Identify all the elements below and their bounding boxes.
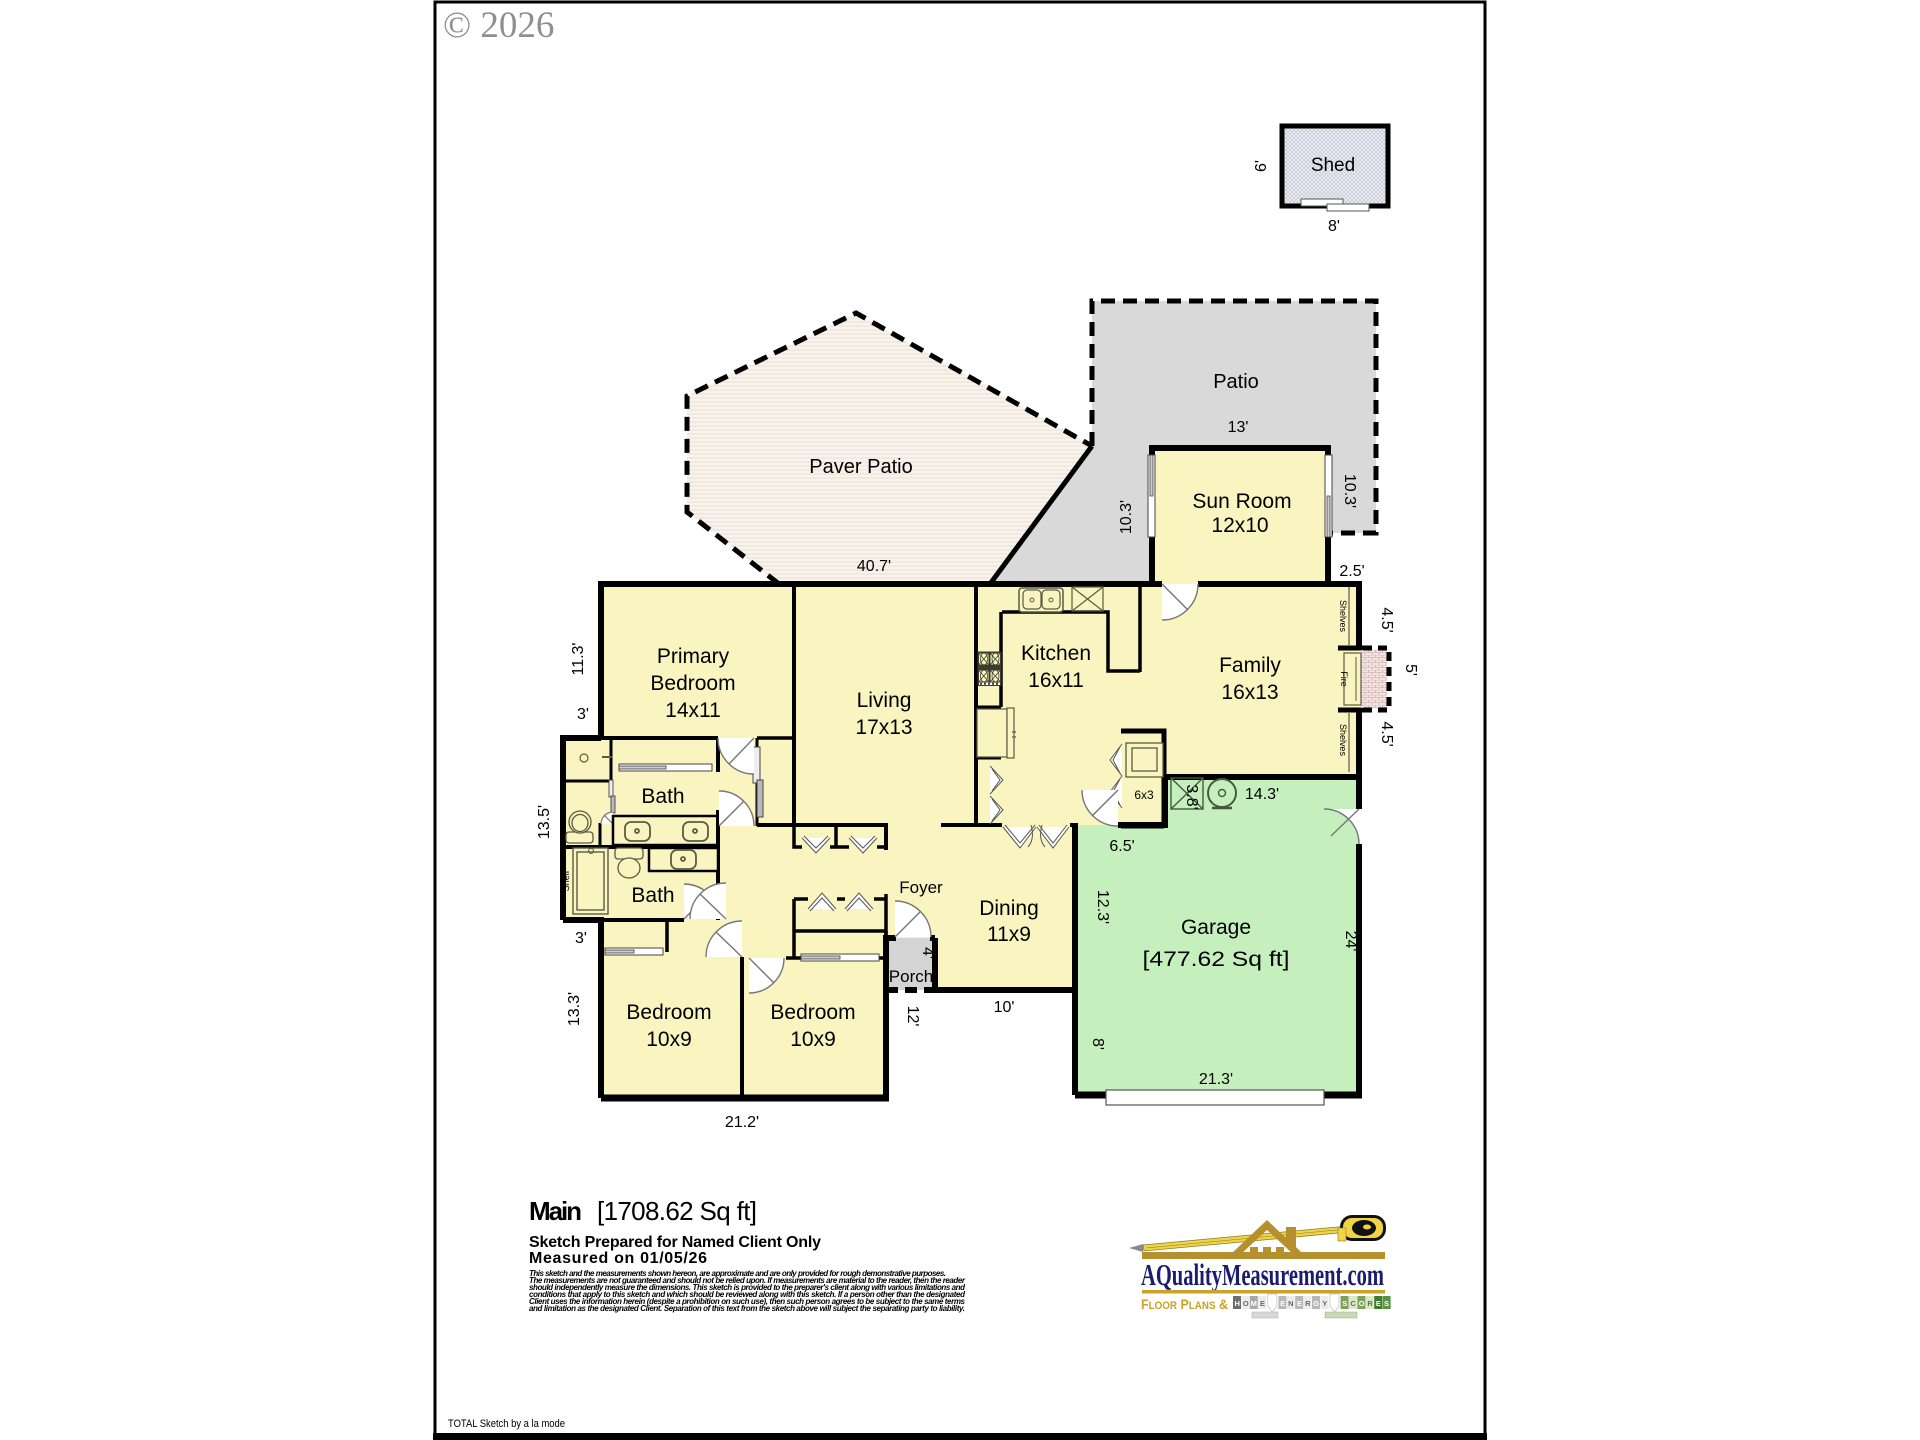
svg-text:10x9: 10x9 xyxy=(646,1028,692,1051)
svg-text:G: G xyxy=(1313,1299,1319,1308)
svg-text:Measured on 01/05/26: Measured on 01/05/26 xyxy=(529,1250,707,1267)
svg-text:Primary: Primary xyxy=(657,645,730,668)
svg-text:and limitation as the designat: and limitation as the designated Client.… xyxy=(529,1304,965,1313)
svg-text:3': 3' xyxy=(575,930,587,947)
svg-text:S: S xyxy=(1342,1299,1347,1308)
svg-text:12': 12' xyxy=(904,1006,921,1027)
svg-text:14x11: 14x11 xyxy=(665,699,721,722)
svg-text:S: S xyxy=(1384,1299,1389,1308)
svg-text:AQualityMeasurement.com: AQualityMeasurement.com xyxy=(1141,1257,1384,1292)
svg-text:12x10: 12x10 xyxy=(1211,514,1268,537)
svg-text:10.3': 10.3' xyxy=(1118,500,1135,534)
svg-text:4': 4' xyxy=(919,947,936,959)
svg-text:Sketch Prepared for Named Clie: Sketch Prepared for Named Client Only xyxy=(529,1234,821,1251)
svg-text:R: R xyxy=(1305,1299,1311,1308)
svg-text:E: E xyxy=(1280,1299,1285,1308)
svg-text:E: E xyxy=(1260,1299,1265,1308)
svg-text:6x3: 6x3 xyxy=(1134,788,1154,802)
svg-text:Sun Room: Sun Room xyxy=(1192,490,1291,513)
svg-text:Y: Y xyxy=(1322,1299,1327,1308)
svg-text:Shelves: Shelves xyxy=(1338,724,1348,757)
svg-text:8': 8' xyxy=(1328,218,1340,235)
svg-text:Shelves: Shelves xyxy=(1338,600,1348,633)
svg-text:© 2026: © 2026 xyxy=(443,5,554,46)
svg-text:21.2': 21.2' xyxy=(725,1114,759,1131)
svg-text:E: E xyxy=(1297,1299,1302,1308)
svg-text:Patio: Patio xyxy=(1213,371,1259,393)
svg-text:14.3': 14.3' xyxy=(1245,786,1279,803)
svg-text:17x13: 17x13 xyxy=(855,716,912,739)
svg-text:Bath: Bath xyxy=(641,785,684,808)
svg-text:TOTAL Sketch by a la mode: TOTAL Sketch by a la mode xyxy=(448,1418,565,1430)
svg-text:3': 3' xyxy=(577,706,589,723)
svg-text:12.3': 12.3' xyxy=(1094,890,1111,924)
svg-text:Garage: Garage xyxy=(1181,916,1251,939)
svg-text:Fire: Fire xyxy=(1339,671,1349,687)
svg-text:6.5': 6.5' xyxy=(1109,838,1134,855)
svg-text:E: E xyxy=(1376,1299,1381,1308)
svg-text:16x13: 16x13 xyxy=(1221,681,1278,704)
svg-text:Paver Patio: Paver Patio xyxy=(809,456,912,478)
svg-text:Living: Living xyxy=(857,689,912,712)
svg-text:10x9: 10x9 xyxy=(790,1028,836,1051)
svg-text:N: N xyxy=(1288,1299,1293,1308)
svg-text:Bath: Bath xyxy=(631,884,674,907)
svg-text:2.5': 2.5' xyxy=(1339,563,1364,580)
svg-text:[477.62 Sq ft]: [477.62 Sq ft] xyxy=(1143,948,1290,971)
svg-text:Family: Family xyxy=(1219,654,1281,677)
svg-text:10': 10' xyxy=(994,999,1015,1016)
svg-text:M: M xyxy=(1251,1299,1257,1308)
svg-text:Shed: Shed xyxy=(1311,155,1355,176)
svg-text:R: R xyxy=(1367,1299,1373,1308)
svg-text:40.7': 40.7' xyxy=(857,558,891,575)
svg-text:Kitchen: Kitchen xyxy=(1021,642,1091,665)
svg-text:24': 24' xyxy=(1342,931,1359,952)
svg-text:11x9: 11x9 xyxy=(987,923,1031,946)
svg-text:13': 13' xyxy=(1228,419,1249,436)
svg-text:16x11: 16x11 xyxy=(1028,669,1084,692)
svg-text:13.3': 13.3' xyxy=(566,992,583,1026)
svg-text:Porch: Porch xyxy=(889,967,933,986)
svg-text:H: H xyxy=(1235,1299,1240,1308)
svg-text:13.5': 13.5' xyxy=(536,805,553,839)
svg-text:4.5': 4.5' xyxy=(1378,607,1395,632)
svg-text:Bedroom: Bedroom xyxy=(626,1001,711,1024)
svg-text:10.3': 10.3' xyxy=(1341,474,1358,508)
svg-text:11.3': 11.3' xyxy=(570,642,587,675)
svg-text:C: C xyxy=(1350,1299,1356,1308)
svg-text:O: O xyxy=(1243,1299,1249,1308)
svg-text:Shelf: Shelf xyxy=(561,870,571,891)
svg-text:21.3': 21.3' xyxy=(1199,1071,1233,1088)
svg-text:Foyer: Foyer xyxy=(899,878,943,897)
svg-text:Bedroom: Bedroom xyxy=(650,672,735,695)
svg-text:4.5': 4.5' xyxy=(1378,721,1395,746)
svg-text:5': 5' xyxy=(1402,664,1419,676)
svg-text:Bedroom: Bedroom xyxy=(770,1001,855,1024)
svg-text:[1708.62 Sq ft]: [1708.62 Sq ft] xyxy=(597,1196,757,1226)
svg-text:8': 8' xyxy=(1089,1038,1106,1050)
svg-text:Main: Main xyxy=(529,1196,582,1226)
svg-text:Dining: Dining xyxy=(979,897,1039,920)
svg-text:3.8': 3.8' xyxy=(1183,784,1200,809)
svg-text:O: O xyxy=(1359,1299,1365,1308)
svg-text:6': 6' xyxy=(1253,160,1270,172)
